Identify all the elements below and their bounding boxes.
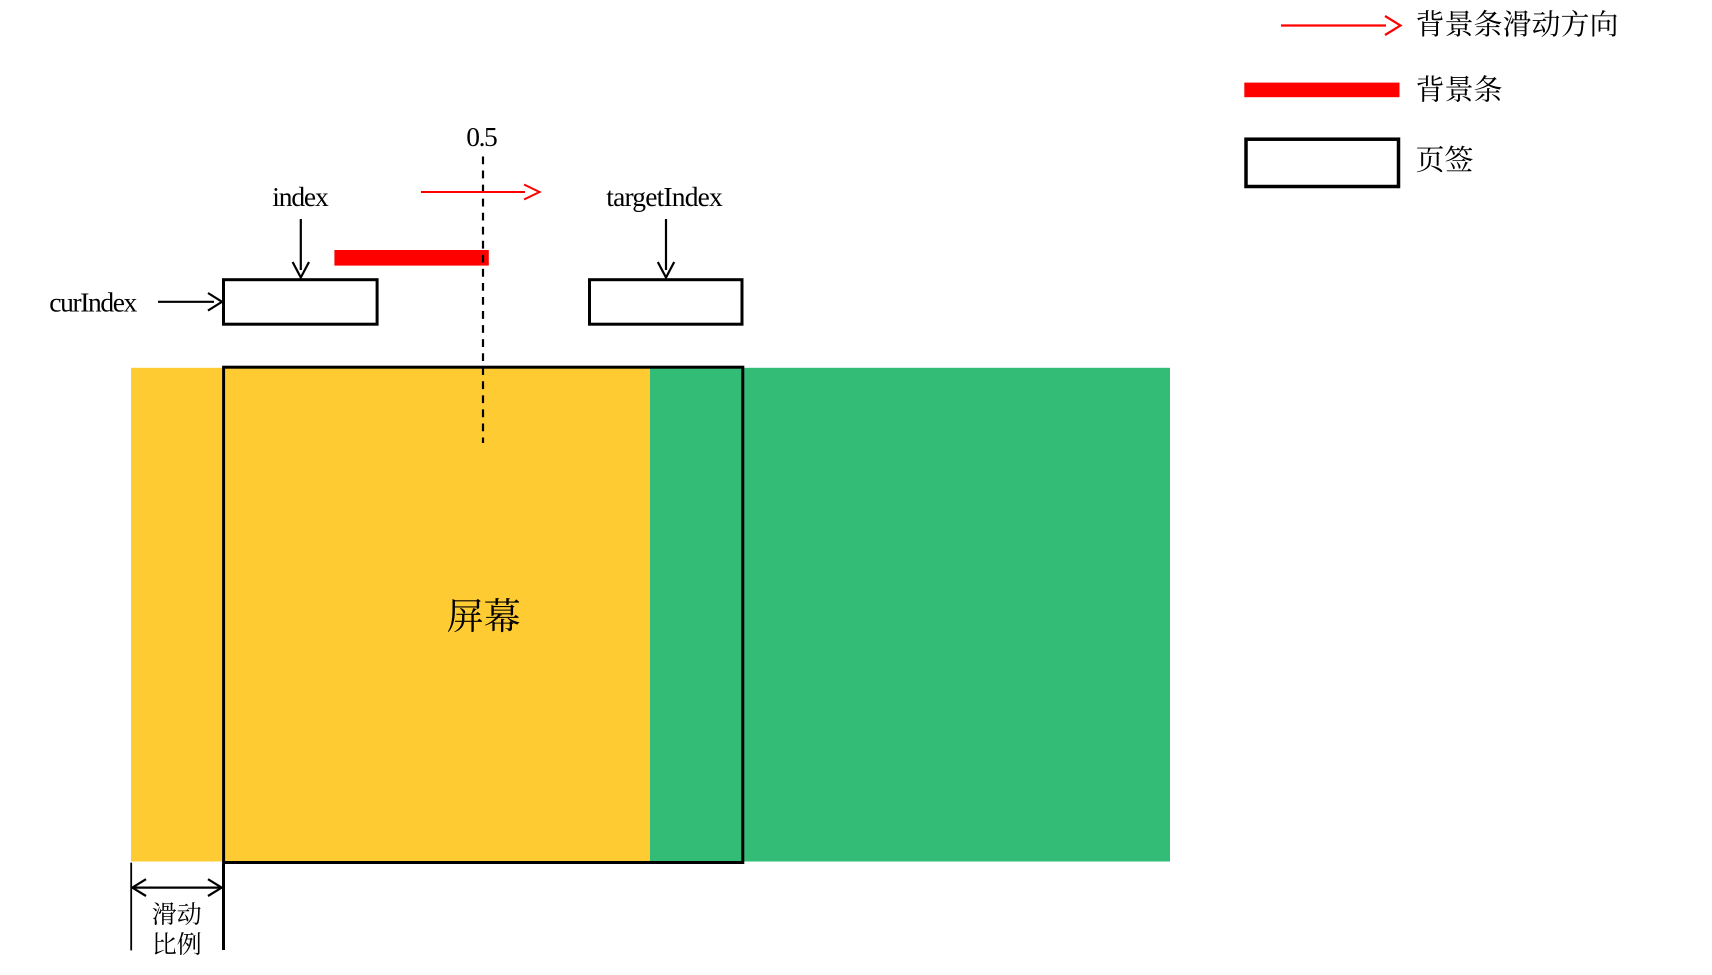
svg-text:0.5: 0.5 [466, 121, 498, 152]
svg-text:targetIndex: targetIndex [606, 181, 723, 212]
svg-text:curIndex: curIndex [49, 287, 137, 318]
svg-text:index: index [272, 181, 329, 212]
